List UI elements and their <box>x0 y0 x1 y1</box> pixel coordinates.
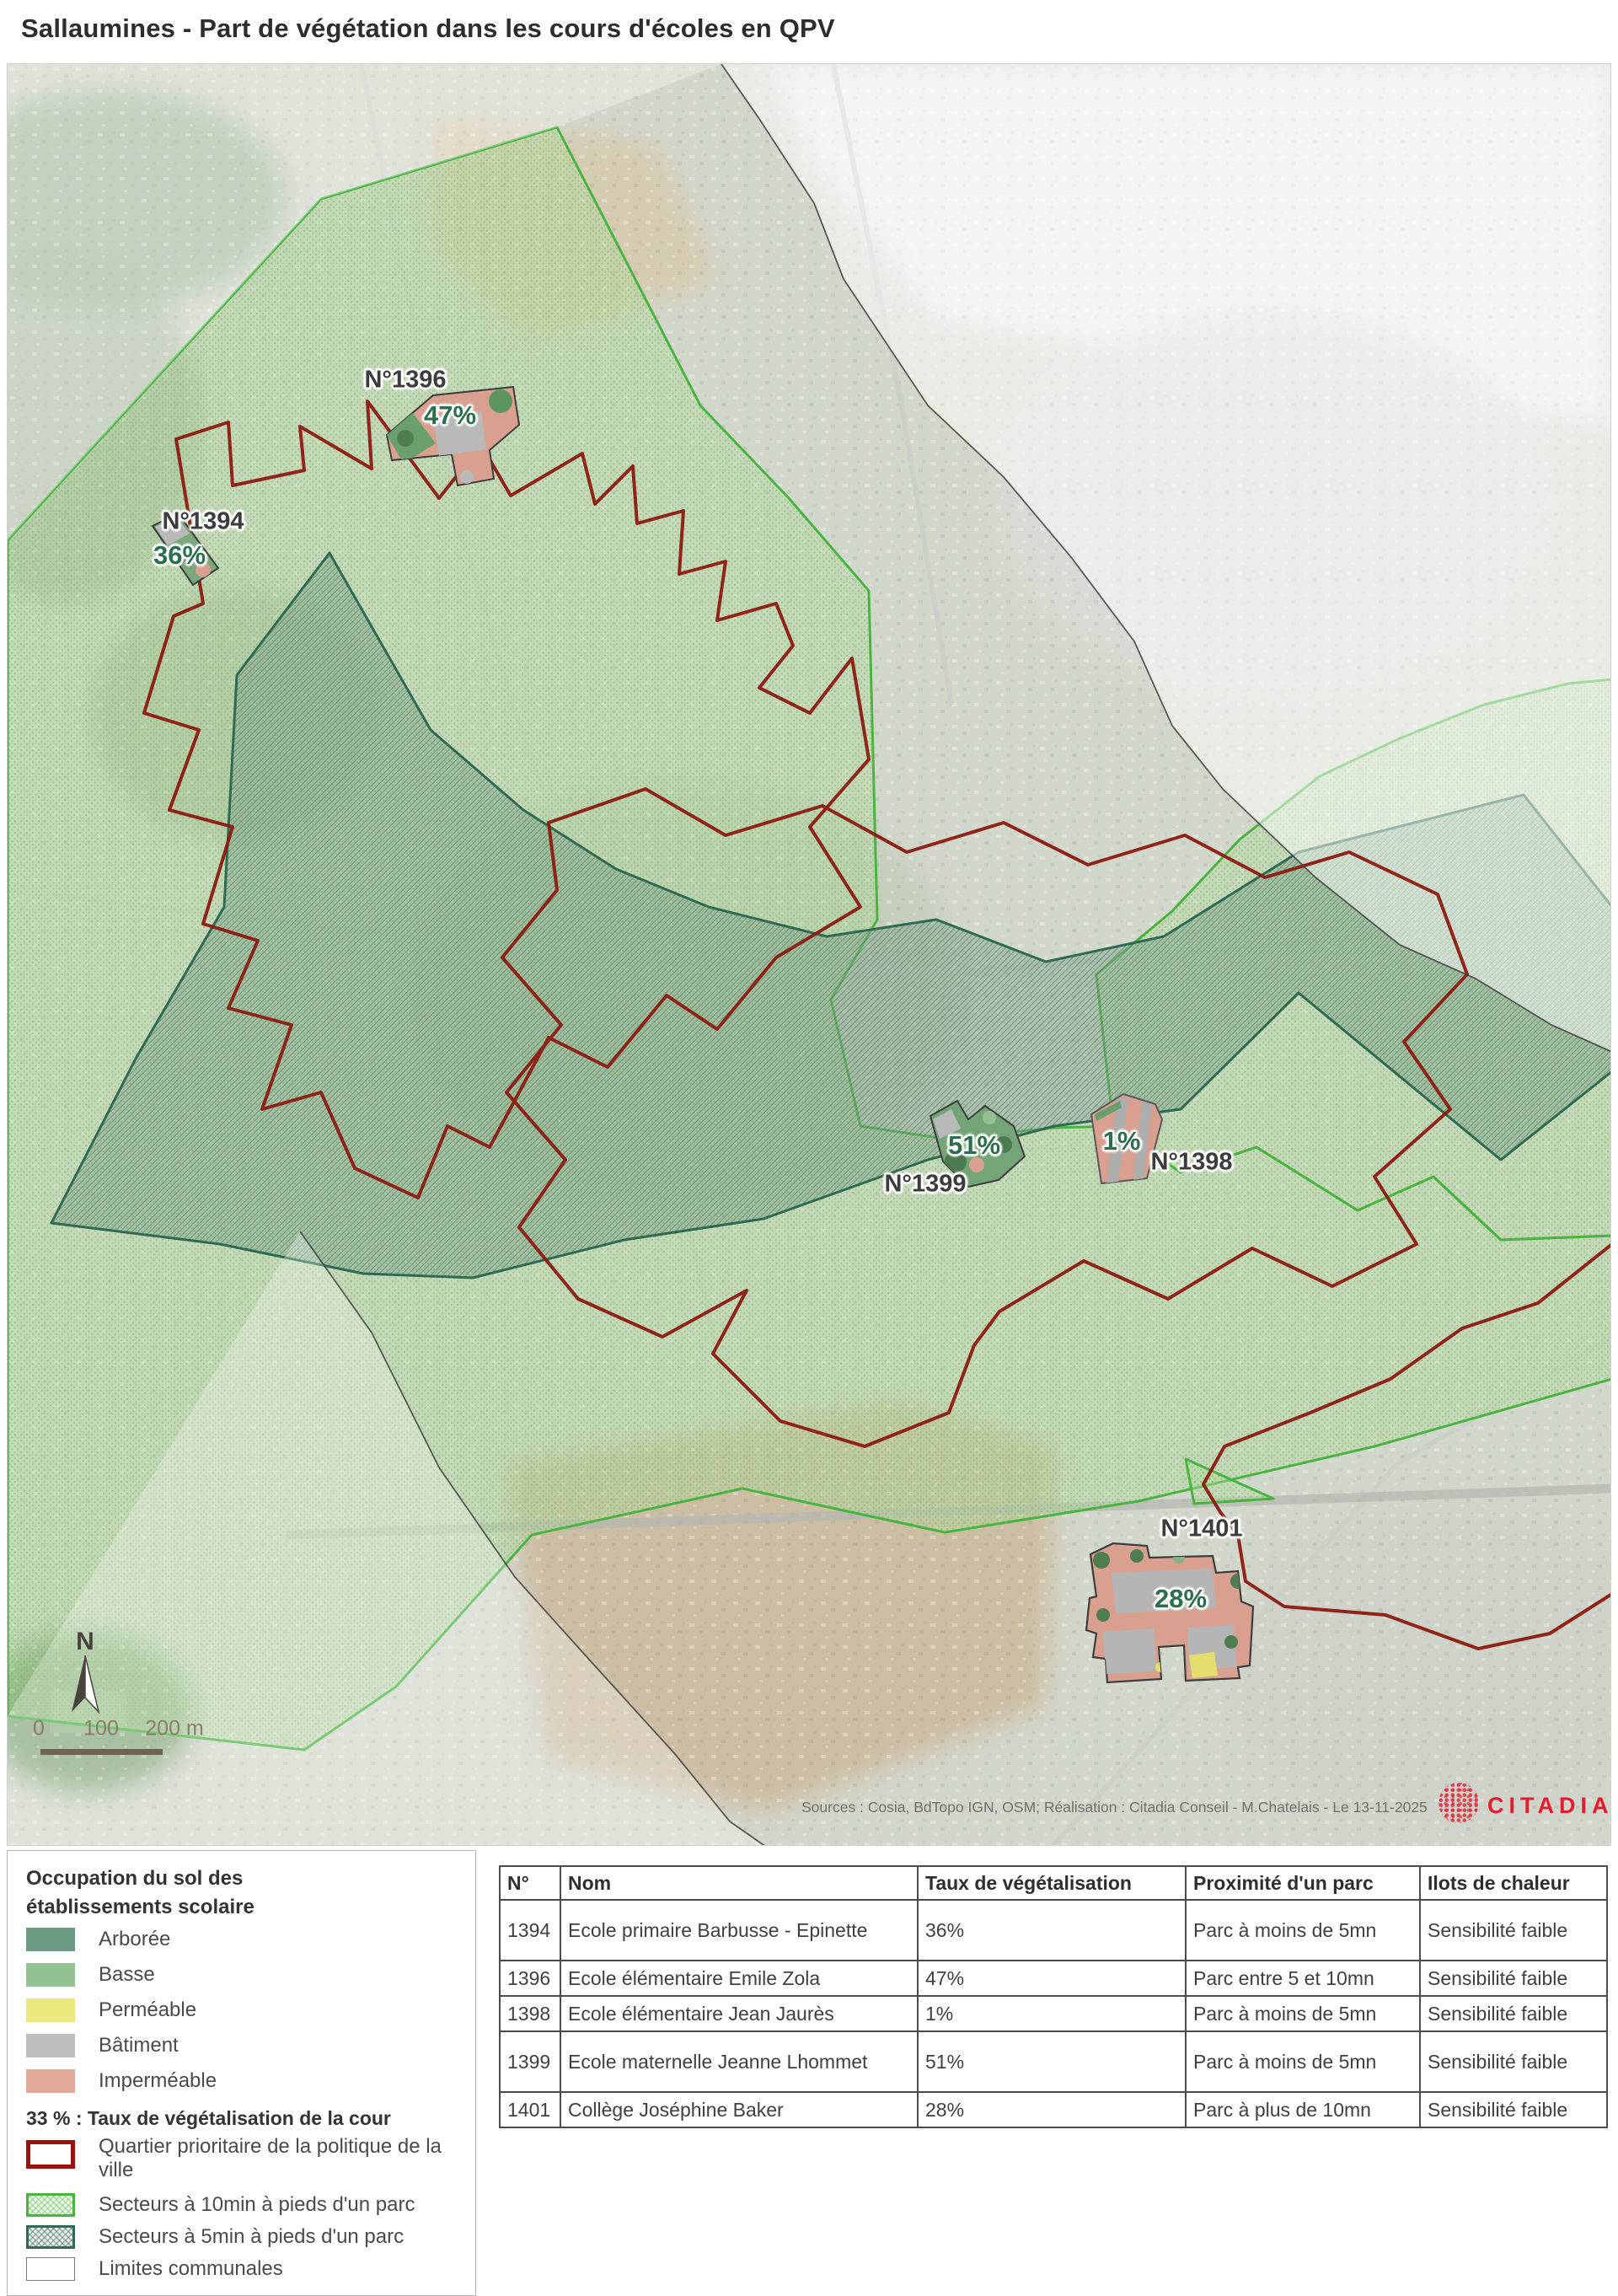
citadia-logo-mark-icon <box>1439 1783 1479 1823</box>
legend-item-batiment: Bâtiment <box>26 2028 460 2063</box>
citadia-logo-text: CITADIA <box>1487 1793 1611 1819</box>
legend-item-sector10: Secteurs à 10min à pieds d'un parc <box>26 2189 460 2221</box>
swatch-communes <box>26 2257 75 2281</box>
col-header-parc: Proximité d'un parc <box>1186 1866 1420 1900</box>
legend-item-permeable: Perméable <box>26 1993 460 2028</box>
schools-table: N° Nom Taux de végétalisation Proximité … <box>499 1865 1608 2128</box>
school-badge-1399: 51% <box>948 1130 1000 1161</box>
north-label: N <box>76 1628 94 1656</box>
page-title: Sallaumines - Part de végétation dans le… <box>21 13 835 44</box>
table-row-1398: 1398 Ecole élémentaire Jean Jaurès 1% Pa… <box>500 1996 1607 2031</box>
swatch-basse <box>26 1963 75 1987</box>
map-canvas: N°1394 36% N°1396 47% N°1398 1% N°1399 5… <box>7 63 1611 1846</box>
table-header-row: N° Nom Taux de végétalisation Proximité … <box>500 1866 1607 1900</box>
legend-item-basse: Basse <box>26 1957 460 1993</box>
report-page: { "title": "Sallaumines - Part de végéta… <box>0 0 1618 2289</box>
legend-item-arboree: Arborée <box>26 1922 460 1957</box>
school-badge-1396: 47% <box>424 400 476 431</box>
legend-item-sector5: Secteurs à 5min à pieds d'un parc <box>26 2221 460 2253</box>
legend-rate-note: 33 % : Taux de végétalisation de la cour <box>26 2107 460 2130</box>
school-badge-1394: 36% <box>153 540 206 571</box>
table-row-1396: 1396 Ecole élémentaire Emile Zola 47% Pa… <box>500 1961 1607 1996</box>
scale-tick-100: 100 <box>83 1717 119 1741</box>
scale-bar <box>40 1749 163 1755</box>
school-label-1396: N°1396 <box>364 367 446 394</box>
sources-credit: Sources : Cosia, BdTopo IGN, OSM; Réalis… <box>801 1799 1442 1816</box>
table-row-1399: 1399 Ecole maternelle Jeanne Lhommet 51%… <box>500 2031 1607 2092</box>
col-header-taux: Taux de végétalisation <box>918 1866 1186 1900</box>
legend-title-line2: établissements scolaire <box>26 1893 460 1922</box>
scale-tick-200m: 200 m <box>145 1717 203 1741</box>
citadia-logo: CITADIA <box>1432 1779 1605 1830</box>
school-badge-1398: 1% <box>1103 1126 1141 1156</box>
swatch-sector10 <box>26 2193 75 2217</box>
swatch-impermeable <box>26 2069 75 2093</box>
map-svg <box>8 64 1611 1846</box>
table-row-1394: 1394 Ecole primaire Barbusse - Epinette … <box>500 1900 1607 1961</box>
col-header-nom: Nom <box>560 1866 918 1900</box>
table-row-1401: 1401 Collège Joséphine Baker 28% Parc à … <box>500 2092 1607 2127</box>
school-label-1399: N°1399 <box>884 1171 966 1199</box>
legend-item-impermeable: Imperméable <box>26 2063 460 2099</box>
school-label-1401: N°1401 <box>1160 1515 1242 1543</box>
legend-item-qpv: Quartier prioritaire de la politique de … <box>26 2135 460 2189</box>
school-label-1394: N°1394 <box>162 508 244 536</box>
scale-tick-0: 0 <box>33 1717 45 1741</box>
swatch-qpv <box>26 2140 75 2169</box>
legend-panel: Occupation du sol des établissements sco… <box>7 1850 476 2296</box>
school-label-1398: N°1398 <box>1150 1149 1232 1177</box>
legend-title-line1: Occupation du sol des <box>26 1864 460 1893</box>
col-header-chaleur: Ilots de chaleur <box>1420 1866 1607 1900</box>
legend-item-communes: Limites communales <box>26 2253 460 2285</box>
swatch-permeable <box>26 1998 75 2022</box>
swatch-arboree <box>26 1928 75 1951</box>
swatch-batiment <box>26 2034 75 2057</box>
school-badge-1401: 28% <box>1155 1584 1207 1614</box>
col-header-num: N° <box>500 1866 560 1900</box>
swatch-sector5 <box>26 2225 75 2249</box>
